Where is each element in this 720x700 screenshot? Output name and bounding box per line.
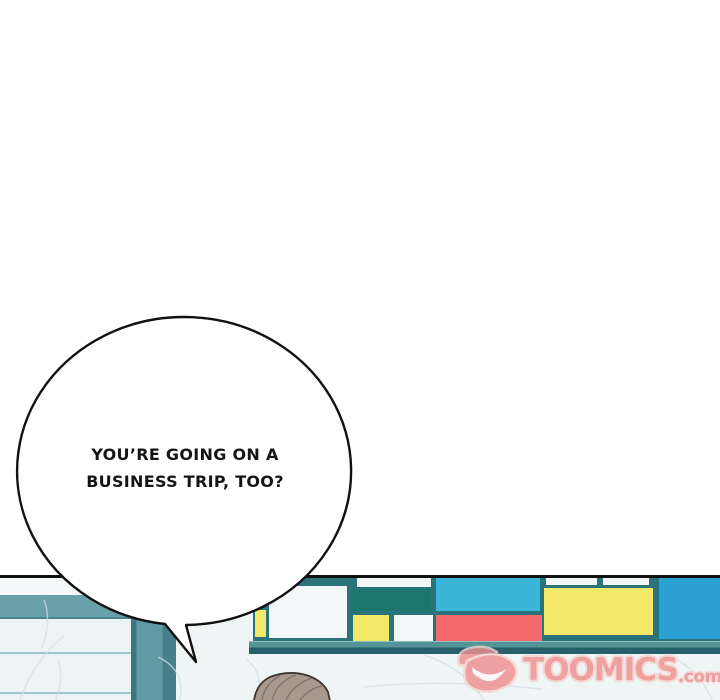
block-blue-right — [659, 578, 720, 639]
block-yellow-large — [544, 588, 653, 635]
mondrian-art — [253, 578, 720, 641]
block-white-large-left — [269, 586, 347, 638]
speech-line-2: BUSINESS TRIP, TOO? — [60, 468, 310, 495]
wall-siding-line — [0, 692, 131, 694]
block-white-strip-2 — [546, 578, 597, 585]
toomics-watermark: TOOMICS .com — [455, 643, 720, 697]
panel-top-border — [0, 575, 720, 578]
wall-siding-teal-band — [0, 595, 131, 619]
toomics-domain-text: .com — [678, 664, 720, 690]
door-frame-pillar — [131, 578, 176, 700]
block-white-small — [394, 615, 433, 641]
block-white-strip-1 — [357, 578, 431, 587]
block-red — [436, 615, 542, 641]
block-yellow-strip-left — [255, 610, 266, 637]
comic-page: { "comic": { "speech_bubble": { "line1":… — [0, 0, 720, 700]
toomics-brand-text: TOOMICS — [523, 650, 678, 690]
wall-siding-line — [0, 652, 131, 654]
block-cyan — [436, 578, 540, 611]
speech-line-1: YOU’RE GOING ON A — [60, 441, 310, 468]
wall-siding-lower — [0, 619, 131, 700]
speech-bubble-text: YOU’RE GOING ON A BUSINESS TRIP, TOO? — [60, 441, 310, 497]
block-yellow-small — [353, 615, 389, 641]
toomics-logo-icon — [455, 645, 521, 695]
wall-siding-white-band — [0, 578, 131, 595]
block-white-strip-3 — [603, 578, 649, 585]
block-dark-teal — [352, 589, 431, 611]
